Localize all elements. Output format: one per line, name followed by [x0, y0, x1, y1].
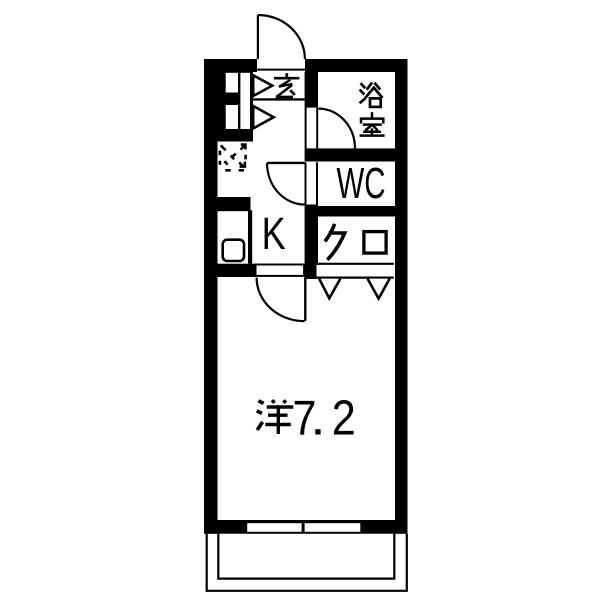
svg-text:K: K: [262, 208, 286, 259]
svg-text:7: 7: [293, 391, 317, 446]
svg-text:WC: WC: [337, 160, 386, 208]
svg-text:2: 2: [332, 391, 356, 446]
